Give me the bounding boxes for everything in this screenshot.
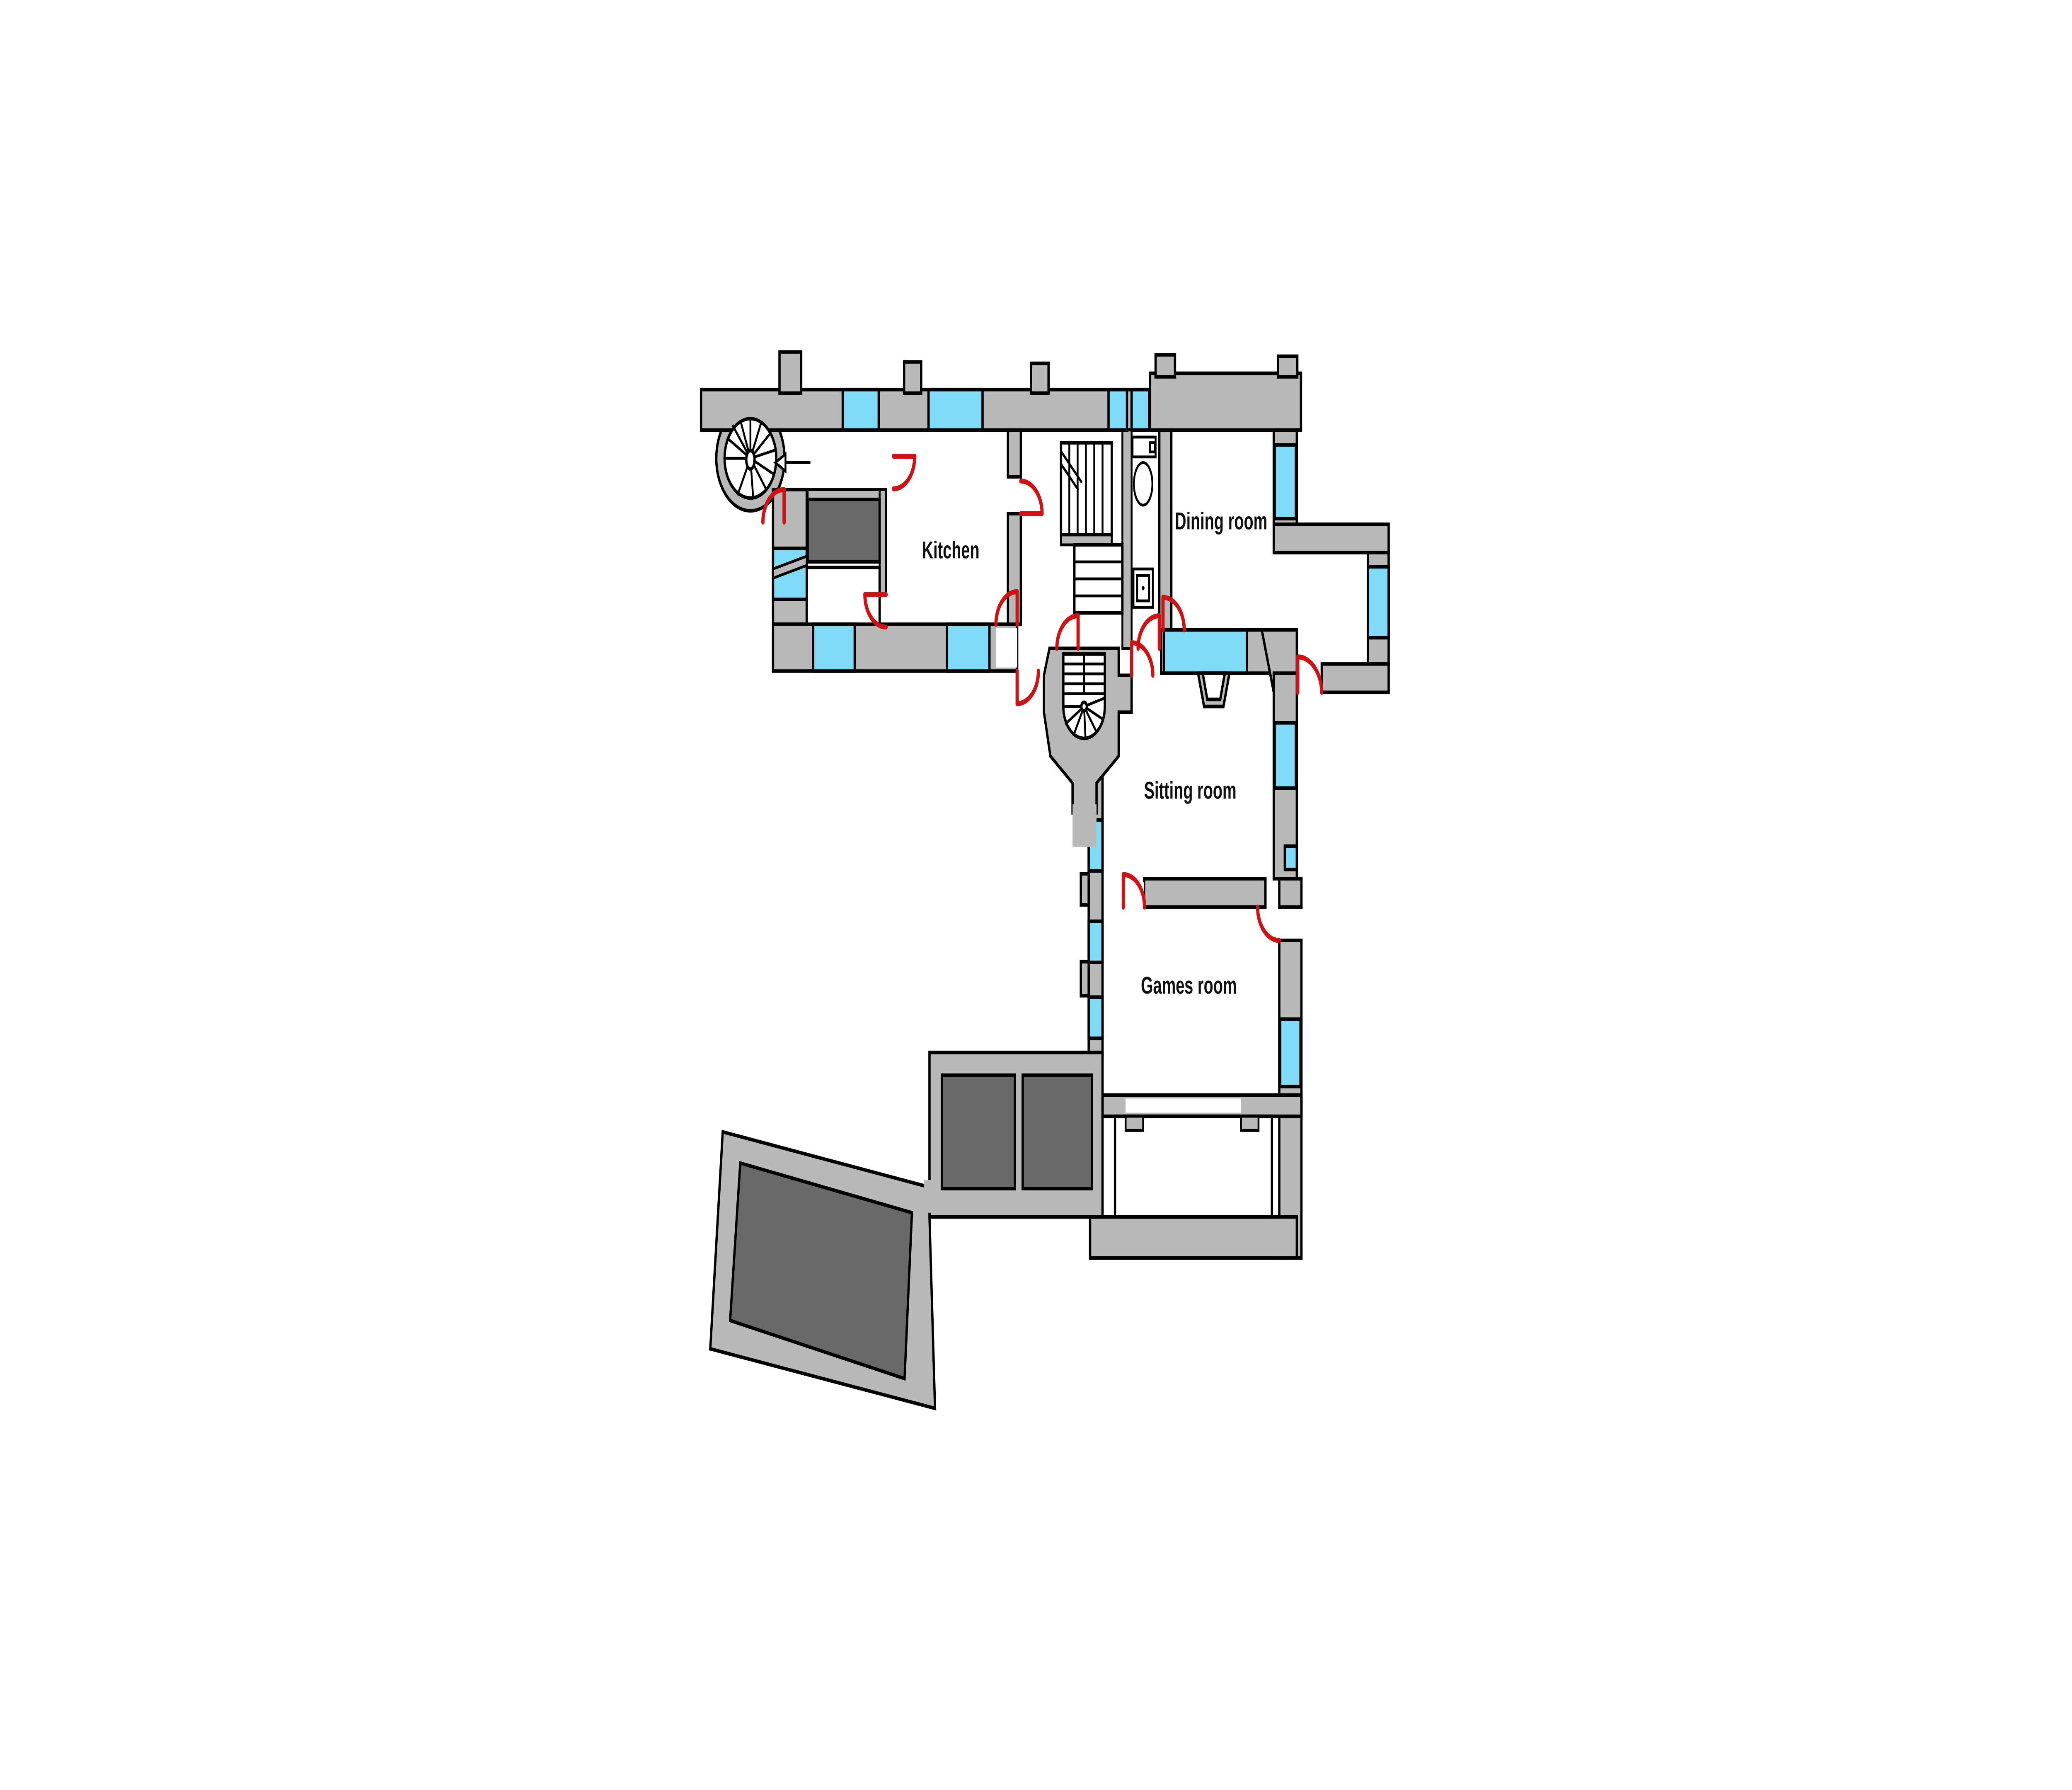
door-kitchen-northwest: [893, 456, 915, 489]
south-wing-bottom-wall: [1090, 1217, 1297, 1258]
door-hall-west: [1021, 481, 1042, 514]
central-tower: [1044, 648, 1132, 847]
window-north-2: [929, 390, 983, 431]
tower-stem: [1072, 805, 1097, 847]
door-tower-north: [1057, 616, 1078, 648]
room-label-games-room: Games room: [1141, 973, 1237, 999]
room-label-dining-room: Dining room: [1175, 508, 1267, 535]
window-sitting-east-2: [1285, 847, 1297, 870]
room-label-sitting-room: Sitting room: [1144, 778, 1237, 804]
window-north-3: [1109, 390, 1127, 431]
east-wing-south-wall: [1322, 664, 1389, 692]
wc-east-wall: [1159, 430, 1172, 648]
games-north-east-pier: [1279, 879, 1301, 907]
games-south-opening: [1126, 1099, 1241, 1113]
buttress-5: [1278, 356, 1297, 377]
kitchen-fireplace: [808, 500, 880, 562]
buttress-1: [779, 352, 801, 393]
kitchen-south-doorway: [996, 628, 1017, 668]
north-wall-east: [1150, 373, 1301, 430]
floor-plan-canvas: Kitchen Dining room Sitting room Games r…: [694, 343, 1405, 1428]
window-south-1: [813, 624, 854, 671]
spiral-stair-northwest: [725, 419, 777, 498]
buttress-2: [904, 362, 921, 393]
window-dining-east: [1275, 445, 1296, 519]
sitting-south-wall: [1144, 879, 1266, 907]
window-north-4: [1132, 390, 1149, 431]
door-kitchen-south-lower: [1017, 671, 1038, 704]
door-east-wing: [1298, 657, 1322, 693]
page-background: Kitchen Dining room Sitting room Games r…: [0, 0, 2072, 1790]
window-east-wing: [1368, 567, 1389, 638]
window-games-east: [1280, 1019, 1300, 1087]
north-arrow: [775, 454, 811, 471]
room-label-kitchen: Kitchen: [922, 537, 980, 564]
wc-cistern: [1133, 437, 1156, 457]
floor-plan: Kitchen Dining room Sitting room Games r…: [694, 343, 1405, 1428]
north-wall-west: [701, 390, 1150, 431]
wc-toilet: [1134, 463, 1152, 506]
store-notch-1: [1126, 1116, 1143, 1130]
window-sitting-east-1: [1275, 723, 1296, 788]
kitchen-east-wall-upper: [1008, 430, 1021, 477]
window-games-west-2: [1089, 997, 1102, 1038]
store-notch-2: [1241, 1116, 1259, 1130]
window-games-west-1: [1089, 922, 1102, 963]
window-south-2: [947, 624, 989, 671]
court-square-2: [1023, 1075, 1092, 1189]
dining-bay: [1198, 673, 1230, 706]
kitchen-east-wall-lower: [1008, 514, 1021, 624]
west-wall-jut-2: [1081, 962, 1089, 996]
west-wall-jut-1: [1081, 874, 1089, 905]
terrace-seam-patch: [924, 1180, 935, 1213]
wc-west-wall: [1122, 430, 1131, 648]
door-games-northeast: [1258, 907, 1279, 941]
buttress-4: [1156, 355, 1175, 377]
east-wing-north-wall: [1274, 525, 1389, 553]
window-dining-south: [1164, 630, 1247, 673]
window-north-1: [843, 390, 879, 431]
wc: [1133, 437, 1156, 607]
court-square-1: [942, 1075, 1015, 1189]
buttress-3: [1031, 363, 1048, 393]
door-vestibule-east: [1132, 643, 1153, 676]
door-wc: [1138, 616, 1159, 648]
straight-staircase: [1061, 443, 1122, 613]
